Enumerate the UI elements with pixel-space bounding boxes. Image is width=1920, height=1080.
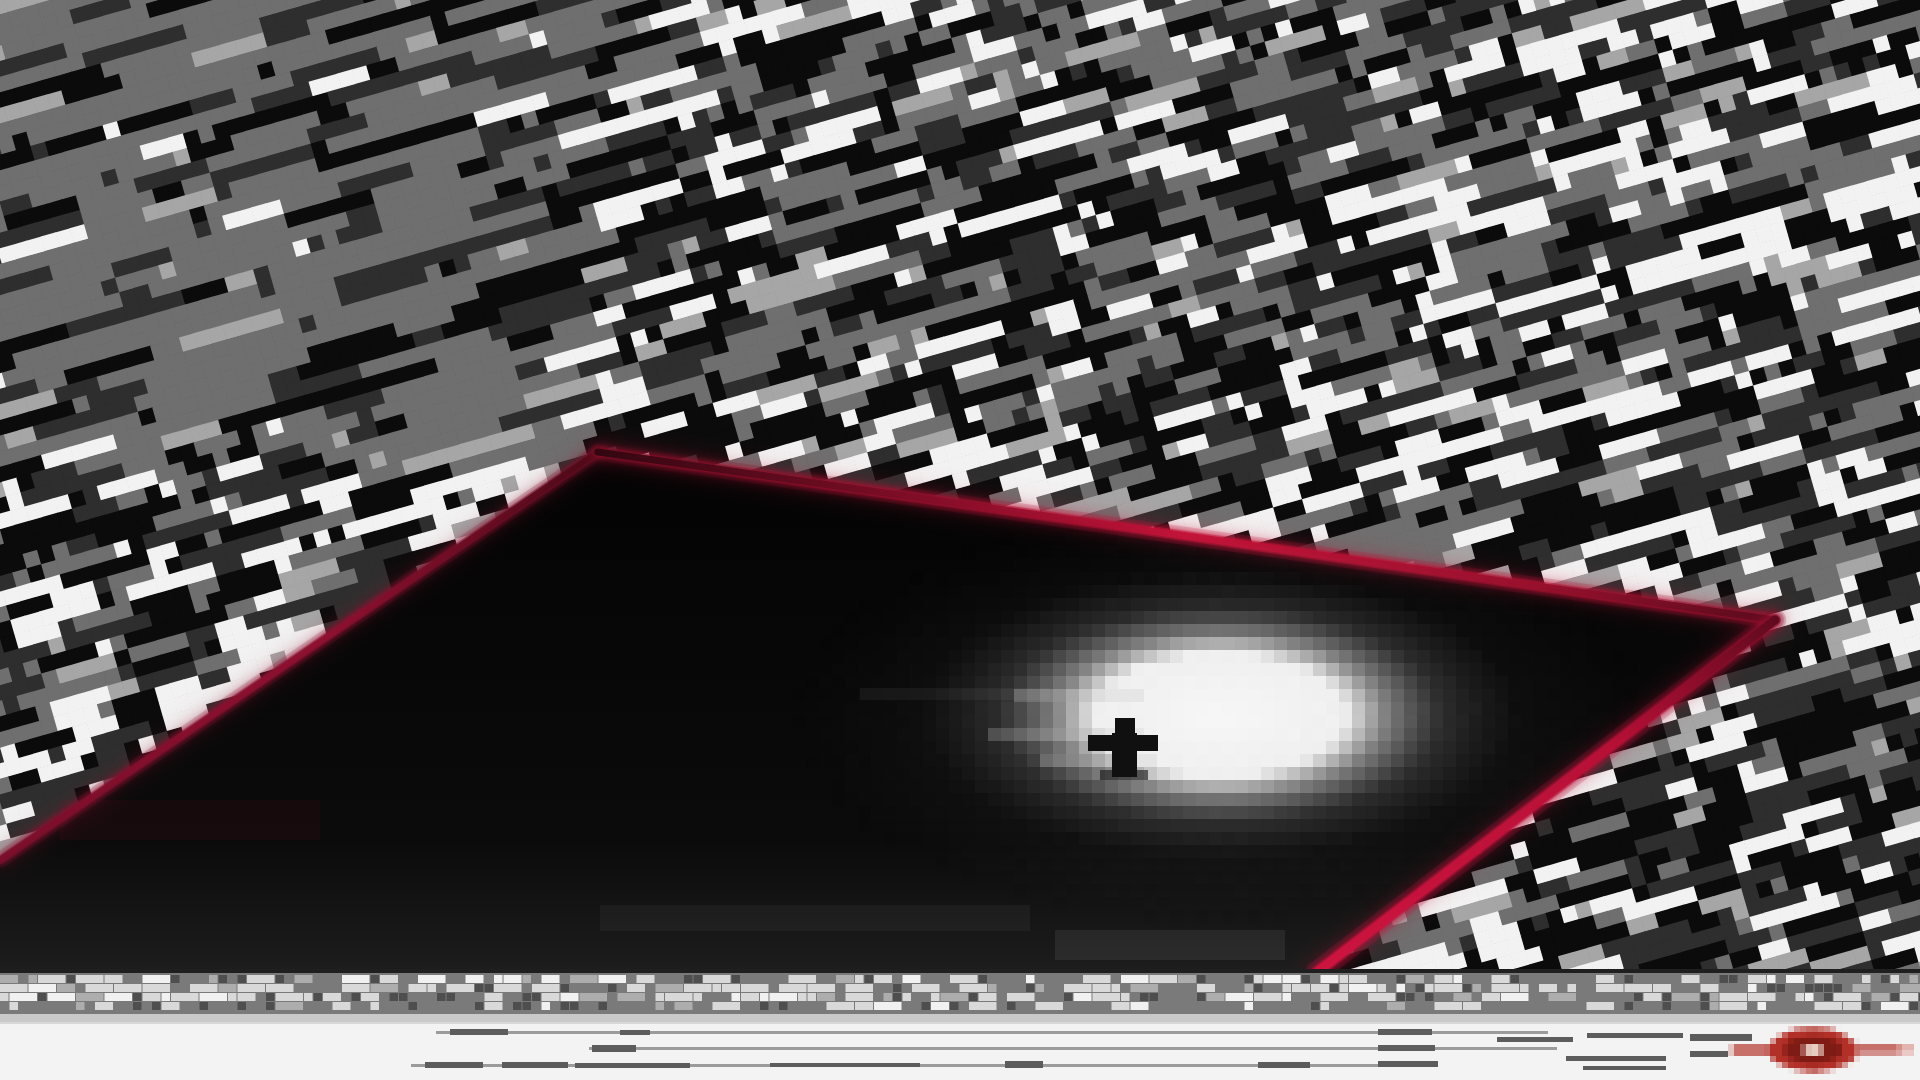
poster-artwork-canvas [0, 0, 1920, 1080]
poster [0, 0, 1920, 1080]
